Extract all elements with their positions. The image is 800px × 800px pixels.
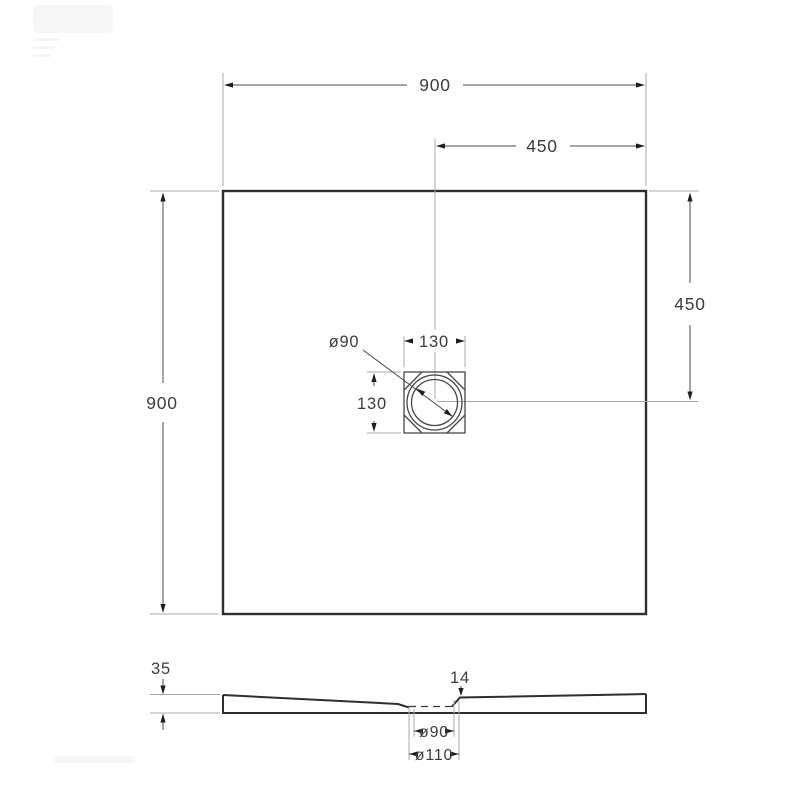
dim-overall-height: 900 bbox=[146, 191, 219, 614]
dim-center-offset-right-label: 450 bbox=[674, 294, 706, 314]
dim-drain-height: 130 bbox=[357, 372, 401, 433]
brand-watermark-logo bbox=[33, 5, 135, 763]
dim-overall-height-label: 900 bbox=[146, 393, 178, 413]
section-view: 35 14 ø90 ø110 bbox=[150, 660, 646, 764]
section-outline bbox=[223, 694, 646, 713]
dim-center-offset-right: 450 bbox=[649, 191, 706, 401]
dim-drain-height-label: 130 bbox=[357, 395, 387, 413]
dim-waste-outlet-diameter-label: ø110 bbox=[415, 747, 453, 764]
centerlines bbox=[435, 139, 698, 402]
dim-edge-thickness: 35 bbox=[150, 660, 220, 730]
dim-overall-width-label: 900 bbox=[419, 75, 451, 95]
dim-center-offset-top: 450 bbox=[436, 136, 645, 156]
dim-drain-diameter-label: ø90 bbox=[329, 333, 360, 351]
dim-edge-thickness-label: 35 bbox=[151, 660, 171, 678]
technical-drawing-page: 900 450 450 900 bbox=[0, 0, 800, 800]
dim-drain-hole-diameter-label: ø90 bbox=[419, 724, 449, 741]
dim-center-offset-top-label: 450 bbox=[526, 136, 558, 156]
dim-drain-width-label: 130 bbox=[419, 333, 449, 351]
dim-drain-zone-thickness-label: 14 bbox=[450, 669, 470, 687]
plan-view: 900 450 450 900 bbox=[146, 73, 706, 614]
dim-drain-zone-thickness: 14 bbox=[450, 669, 470, 696]
technical-drawing-canvas: 900 450 450 900 bbox=[0, 0, 800, 800]
